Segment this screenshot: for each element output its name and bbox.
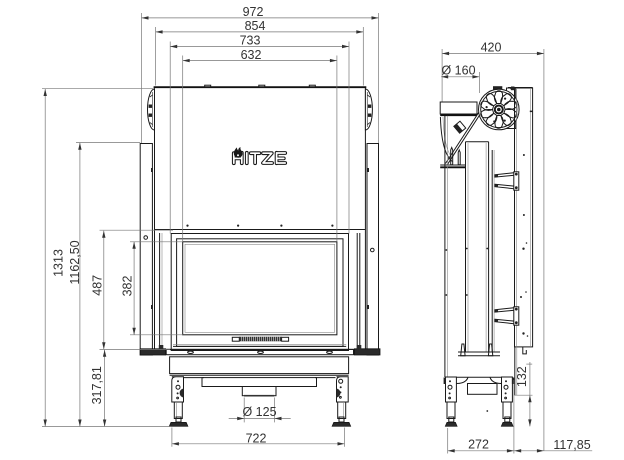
svg-text:117,85: 117,85 bbox=[553, 438, 590, 452]
svg-text:317,81: 317,81 bbox=[90, 366, 104, 404]
svg-text:272: 272 bbox=[468, 437, 489, 451]
svg-text:487: 487 bbox=[90, 275, 104, 296]
svg-text:132: 132 bbox=[515, 366, 529, 387]
svg-text:722: 722 bbox=[246, 432, 267, 446]
svg-text:1313: 1313 bbox=[52, 249, 66, 277]
svg-text:1162,50: 1162,50 bbox=[68, 240, 82, 284]
svg-text:420: 420 bbox=[481, 40, 502, 54]
svg-text:854: 854 bbox=[245, 19, 266, 33]
svg-text:382: 382 bbox=[120, 276, 134, 297]
svg-text:972: 972 bbox=[243, 5, 264, 19]
svg-text:733: 733 bbox=[240, 34, 261, 48]
svg-text:Ø 125: Ø 125 bbox=[242, 405, 276, 419]
svg-text:Ø 160: Ø 160 bbox=[441, 64, 475, 78]
svg-text:632: 632 bbox=[241, 48, 262, 62]
